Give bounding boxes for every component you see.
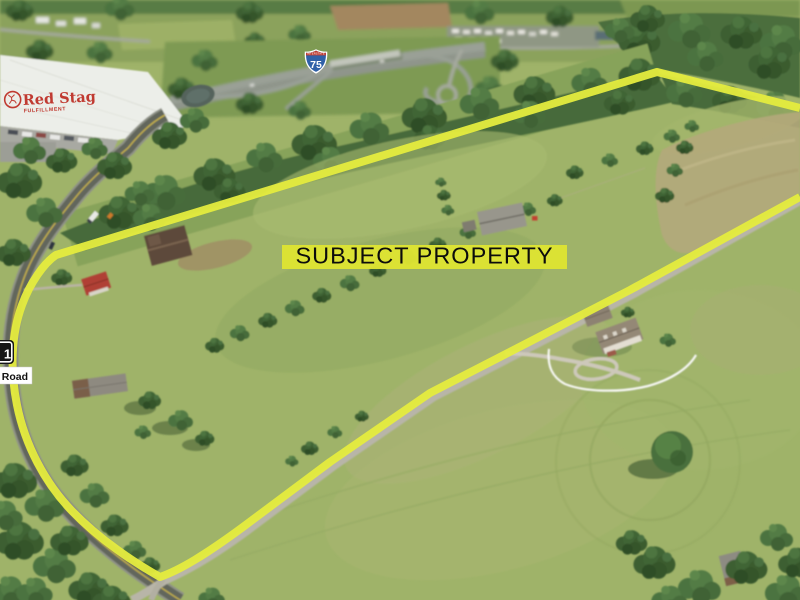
red-roof-house [81,271,112,297]
route-shield-digit: 1 [4,347,11,362]
background-scene [0,0,800,600]
tractor [532,216,538,221]
interstate-number-text: 75 [310,59,322,71]
interior-trees [124,392,214,451]
plowed-field [330,3,452,30]
road-name-text: d Road [0,371,28,383]
state-route-shield: 1 [0,340,14,364]
interstate-header-text: INTERSTATE [307,52,325,56]
bottom-right-trees [616,524,800,600]
aerial-photo: SUBJECT PROPERTY Red Stag FULFILLMENT IN… [0,0,800,600]
subject-property-text: SUBJECT PROPERTY [295,243,553,269]
gray-trailer [72,373,128,398]
road-name-label: d Road [0,367,32,384]
subject-property-label: SUBJECT PROPERTY [282,243,567,270]
